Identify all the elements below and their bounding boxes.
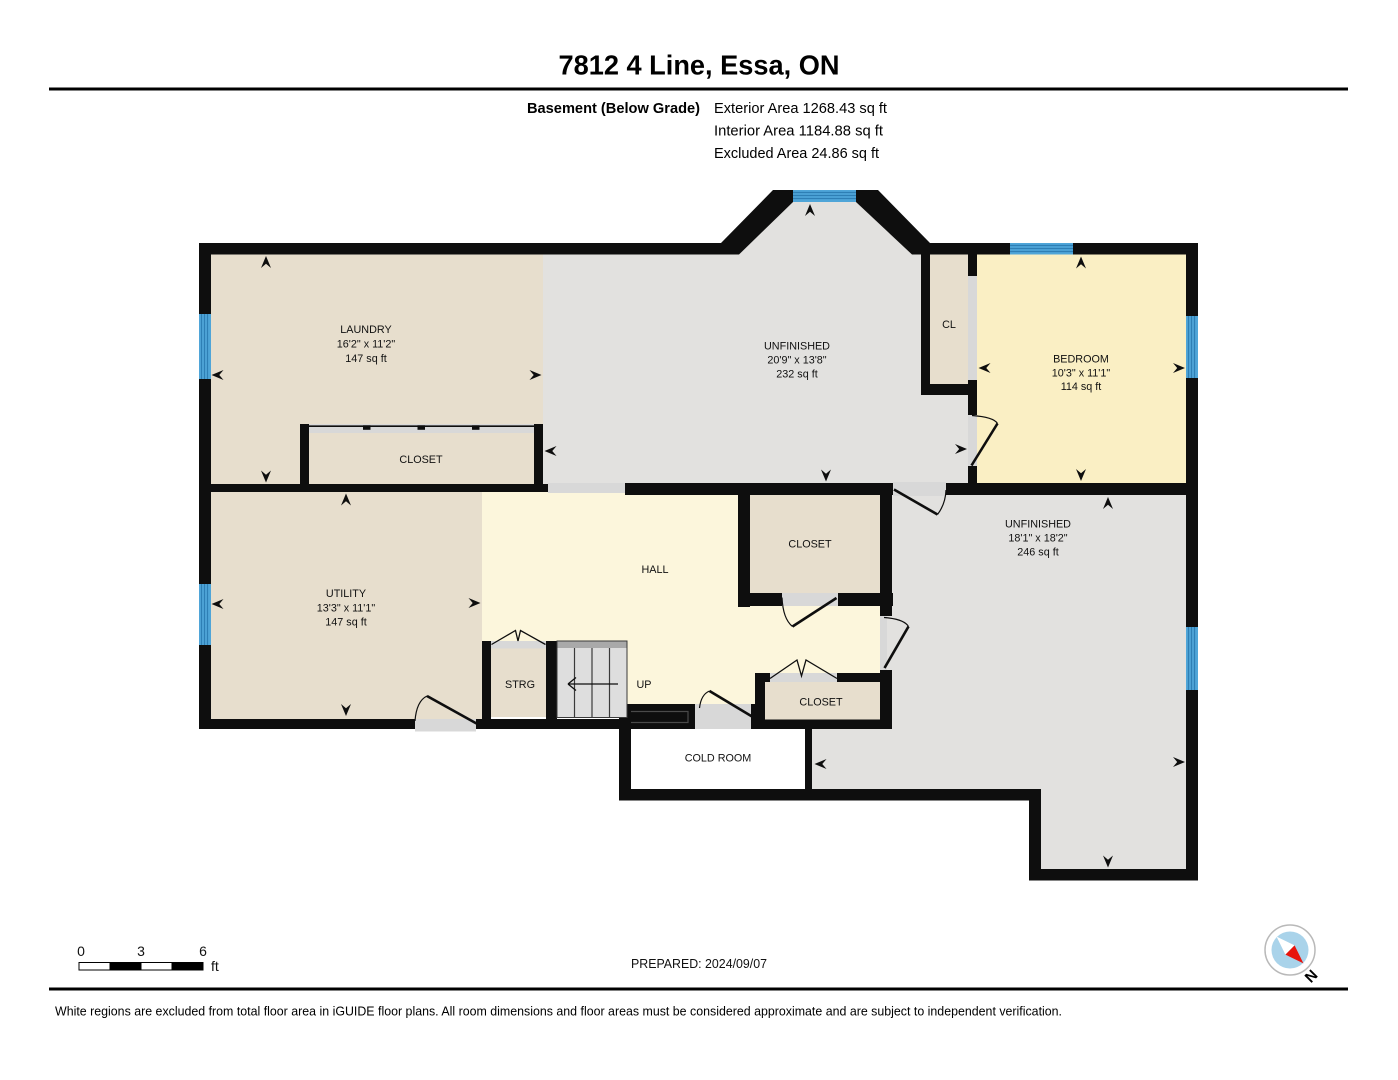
svg-text:246 sq ft: 246 sq ft xyxy=(1017,547,1058,559)
svg-text:White regions are excluded fro: White regions are excluded from total fl… xyxy=(55,1005,1062,1019)
svg-text:UNFINISHED: UNFINISHED xyxy=(1005,519,1071,531)
svg-text:Basement (Below Grade): Basement (Below Grade) xyxy=(527,100,700,117)
svg-text:PREPARED: 2024/09/07: PREPARED: 2024/09/07 xyxy=(631,957,767,971)
svg-text:16'2" x 11'2": 16'2" x 11'2" xyxy=(337,339,396,351)
svg-text:HALL: HALL xyxy=(641,564,668,576)
svg-text:147 sq ft: 147 sq ft xyxy=(345,353,386,365)
svg-text:20'9" x 13'8": 20'9" x 13'8" xyxy=(767,355,826,367)
svg-text:6: 6 xyxy=(199,943,207,959)
svg-text:CLOSET: CLOSET xyxy=(788,539,832,551)
svg-text:18'1" x 18'2": 18'1" x 18'2" xyxy=(1008,533,1067,545)
svg-text:Interior Area 1184.88 sq ft: Interior Area 1184.88 sq ft xyxy=(714,123,884,140)
svg-text:0: 0 xyxy=(77,943,85,959)
svg-text:147 sq ft: 147 sq ft xyxy=(325,617,366,629)
svg-text:Exterior Area 1268.43 sq ft: Exterior Area 1268.43 sq ft xyxy=(714,100,888,117)
svg-text:LAUNDRY: LAUNDRY xyxy=(340,324,391,336)
svg-text:10'3" x 11'1": 10'3" x 11'1" xyxy=(1052,368,1111,380)
svg-text:ft: ft xyxy=(211,958,219,974)
svg-text:STRG: STRG xyxy=(505,679,535,691)
svg-text:UNFINISHED: UNFINISHED xyxy=(764,341,830,353)
svg-text:UTILITY: UTILITY xyxy=(326,588,366,600)
svg-text:Excluded Area 24.86 sq ft: Excluded Area 24.86 sq ft xyxy=(714,145,880,162)
svg-text:232 sq ft: 232 sq ft xyxy=(776,369,817,381)
svg-text:3: 3 xyxy=(137,943,145,959)
svg-text:114 sq ft: 114 sq ft xyxy=(1061,381,1102,393)
svg-text:UP: UP xyxy=(637,679,652,691)
svg-text:13'3" x 11'1": 13'3" x 11'1" xyxy=(317,603,376,615)
svg-text:7812 4 Line, Essa, ON: 7812 4 Line, Essa, ON xyxy=(559,50,840,81)
svg-text:BEDROOM: BEDROOM xyxy=(1053,354,1109,366)
svg-text:CL: CL xyxy=(942,319,956,331)
svg-text:CLOSET: CLOSET xyxy=(399,454,443,466)
svg-text:COLD ROOM: COLD ROOM xyxy=(685,753,752,765)
svg-text:CLOSET: CLOSET xyxy=(799,697,843,709)
